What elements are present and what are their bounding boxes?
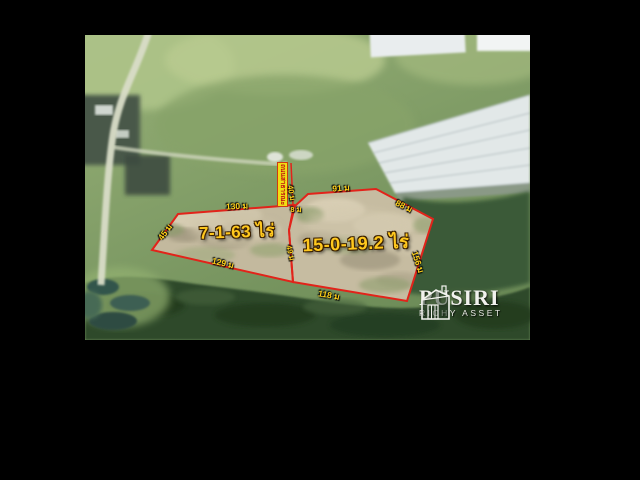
dim-left-top: 130 ม	[226, 198, 249, 213]
watermark-logo: PUSIRI RICHY ASSET	[419, 285, 503, 318]
dim-right-top-left: 91 ม	[332, 180, 350, 195]
building-icon	[419, 285, 453, 323]
aerial-photo: ถนนสาธารณะ 7-1-63 ไร่ 15-0-19.2 ไร่ 130 …	[85, 35, 530, 340]
plot-left-area-label: 7-1-63 ไร่	[199, 217, 276, 247]
dim-road-width: 8 ม	[290, 204, 301, 216]
plot-right-area-label: 15-0-19.2 ไร่	[302, 227, 410, 260]
dim-divider-upper: 40 ม	[284, 184, 298, 201]
